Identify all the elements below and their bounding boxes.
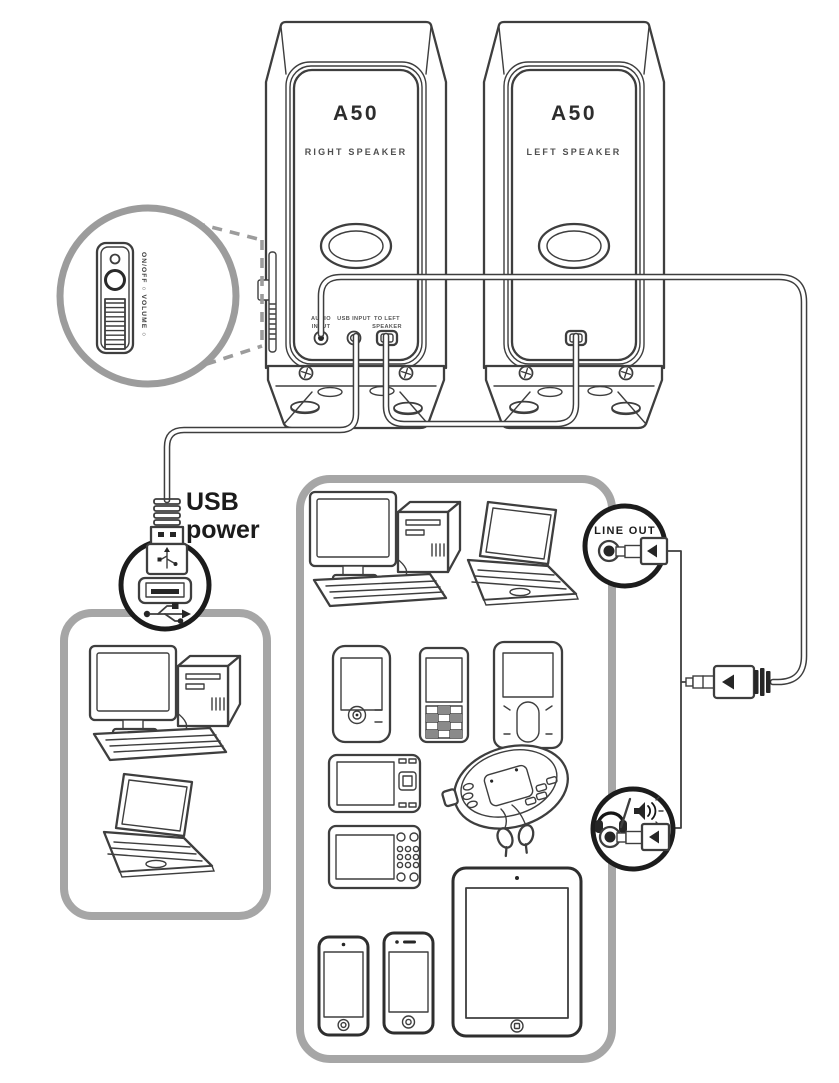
output-select-line	[667, 551, 688, 828]
mobile-phone-icon	[420, 648, 468, 742]
headphone-output-callout	[593, 789, 673, 869]
ipod-icon	[319, 937, 368, 1035]
power-button-icon	[106, 271, 125, 290]
to-left-label-2: SPEAKER	[372, 324, 402, 330]
right-speaker-name: RIGHT SPEAKER	[305, 147, 408, 157]
media-player-icon	[329, 755, 420, 812]
left-speaker-name: LEFT SPEAKER	[527, 147, 622, 157]
right-speaker-model: A50	[333, 102, 379, 125]
usb-input-label: USB INPUT	[337, 316, 371, 322]
right-grille-oval	[321, 224, 391, 268]
smartphone-icon	[384, 933, 433, 1033]
media-player-icon	[329, 826, 420, 888]
usb-plug-icon	[147, 499, 187, 574]
control-zoom-circle	[60, 208, 236, 384]
left-speaker-model: A50	[551, 102, 597, 125]
right-speaker: A50 RIGHT SPEAKER AUDIO INPUT USB INPUT …	[258, 22, 446, 428]
audio-plug-icon	[686, 666, 771, 698]
usb-receptacle-icon	[139, 578, 191, 603]
usb-power-label-1: USB	[186, 488, 239, 516]
desktop-computer-icon	[310, 492, 460, 606]
mp3-player-icon	[333, 646, 390, 742]
usb-power-callout: USB power	[121, 488, 260, 629]
usb-power-label-2: power	[186, 516, 260, 544]
line-out-callout: LINE OUT	[585, 506, 667, 586]
line-out-label: LINE OUT	[594, 525, 656, 537]
controls-label: ON/OFF ○ VOLUME ○	[140, 252, 147, 337]
tablet-icon	[453, 868, 581, 1036]
mp3-player-icon	[494, 642, 562, 748]
control-callout: ON/OFF ○ VOLUME ○	[60, 208, 262, 384]
connection-diagram: A50 RIGHT SPEAKER AUDIO INPUT USB INPUT …	[0, 0, 839, 1083]
left-grille-oval	[539, 224, 609, 268]
to-left-label-1: TO LEFT	[374, 316, 400, 322]
desktop-computer-icon	[90, 646, 240, 760]
